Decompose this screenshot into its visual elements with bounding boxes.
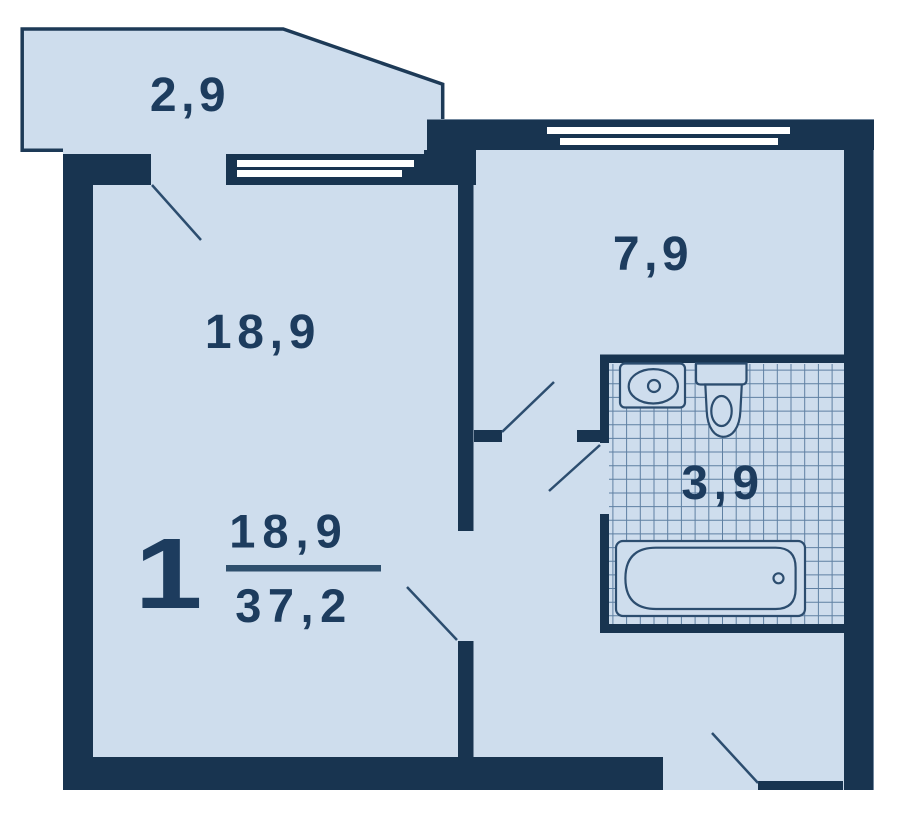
svg-text:2,9: 2,9 xyxy=(150,69,230,122)
svg-text:7,9: 7,9 xyxy=(613,228,693,281)
svg-text:1: 1 xyxy=(135,517,203,629)
svg-text:3,9: 3,9 xyxy=(681,457,764,510)
svg-text:37,2: 37,2 xyxy=(235,579,352,632)
svg-text:18,9: 18,9 xyxy=(205,306,321,359)
svg-text:18,9: 18,9 xyxy=(229,505,348,558)
